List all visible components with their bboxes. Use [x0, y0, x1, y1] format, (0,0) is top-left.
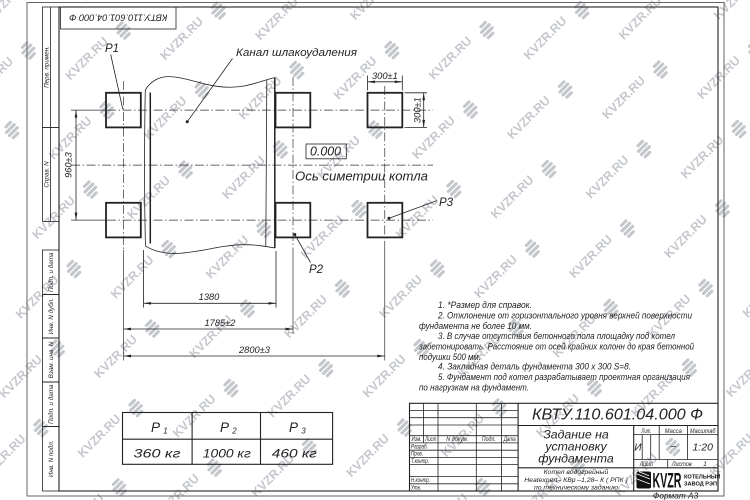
svg-text:Формат А3: Формат А3	[653, 490, 699, 500]
svg-text:Лит.: Лит.	[641, 428, 652, 435]
svg-text:2. Отклонение от горизонтальн: 2. Отклонение от горизонтального уровня …	[437, 309, 693, 320]
svg-text:1000 кг: 1000 кг	[203, 447, 251, 461]
svg-text:Листов: Листов	[671, 461, 692, 468]
svg-text:960±3: 960±3	[64, 151, 74, 178]
svg-text:5. Фундамент под котел разраб: 5. Фундамент под котел разрабатывает про…	[438, 371, 690, 382]
svg-text:Ось симетрии котла: Ось симетрии котла	[295, 170, 428, 184]
svg-text:1785±2: 1785±2	[205, 318, 237, 328]
svg-text:фундамента не более 10 мм.: фундамента не более 10 мм.	[419, 320, 532, 331]
svg-text:по техническому заданию: по техническому заданию	[534, 483, 618, 491]
svg-text:КОТЕЛЬНЫЙ: КОТЕЛЬНЫЙ	[684, 473, 720, 481]
svg-text:Утв.: Утв.	[410, 484, 421, 491]
svg-text:забетонировать. Расстояние от: забетонировать. Расстояние от осей крайн…	[418, 341, 694, 352]
svg-text:Масса: Масса	[665, 428, 682, 435]
svg-text:P2: P2	[309, 264, 324, 276]
svg-text:Н.контр.: Н.контр.	[411, 477, 430, 484]
svg-text:460 кг: 460 кг	[272, 447, 317, 461]
svg-text:Пров.: Пров.	[411, 451, 423, 458]
svg-text:Справ. N: Справ. N	[44, 161, 51, 188]
svg-text:1:20: 1:20	[692, 442, 713, 454]
svg-text:1: 1	[703, 461, 707, 468]
svg-text:Лист: Лист	[425, 436, 437, 443]
svg-text:300±1: 300±1	[412, 97, 422, 123]
svg-text:Инв. N дубл.: Инв. N дубл.	[47, 298, 55, 334]
svg-text:Перв. примен.: Перв. примен.	[44, 46, 51, 88]
svg-text:Подп. и дата: Подп. и дата	[47, 252, 55, 292]
svg-text:4. Закладная деталь фундамент: 4. Закладная деталь фундамента 300 x 300…	[438, 361, 631, 372]
svg-text:2800±3: 2800±3	[238, 345, 271, 355]
svg-text:Изм.: Изм.	[412, 436, 422, 443]
svg-text:Инв. N подл.: Инв. N подл.	[47, 440, 55, 477]
svg-text:360 кг: 360 кг	[134, 447, 181, 461]
svg-text:Масштаб: Масштаб	[690, 427, 716, 435]
svg-text:Взам. инв. N: Взам. инв. N	[48, 341, 55, 378]
svg-text:Heatexpert– КВр –1,28– К ( РПК: Heatexpert– КВр –1,28– К ( РПК )	[524, 477, 627, 484]
svg-text:P1: P1	[105, 43, 119, 55]
svg-text:300±1: 300±1	[372, 71, 398, 81]
svg-text:Подп. и дата: Подп. и дата	[47, 384, 55, 424]
svg-text:фундамента: фундамента	[538, 452, 614, 466]
svg-text:И: И	[634, 443, 642, 454]
svg-text:0.000: 0.000	[310, 145, 341, 159]
svg-text:Т.контр.: Т.контр.	[411, 458, 429, 465]
svg-text:КВТУ.110.601.04.000 Ф: КВТУ.110.601.04.000 Ф	[532, 407, 703, 424]
svg-text:Лист: Лист	[639, 461, 653, 468]
svg-text:1380: 1380	[199, 292, 221, 302]
svg-text:–: –	[670, 441, 677, 452]
svg-text:1. *Размер для справок.: 1. *Размер для справок.	[438, 299, 532, 310]
svg-text:Р3: Р3	[439, 197, 454, 209]
svg-text:3. В случае отсутствия бетонн: 3. В случае отсутствия бетонного пола пл…	[438, 330, 676, 341]
svg-text:Разраб.: Разраб.	[411, 443, 428, 451]
svg-text:КВТУ.110.601.04.000 Ф: КВТУ.110.601.04.000 Ф	[68, 13, 167, 23]
svg-text:KVZR: KVZR	[653, 470, 682, 493]
svg-text:по нагрузкам на фундамент.: по нагрузкам на фундамент.	[419, 381, 529, 392]
svg-text:Канал шлакоудаления: Канал шлакоудаления	[236, 47, 357, 59]
svg-text:Котел водогрейный: Котел водогрейный	[544, 468, 609, 476]
svg-text:Дата: Дата	[503, 436, 516, 443]
svg-text:ЗАВОД РЭП: ЗАВОД РЭП	[684, 482, 717, 488]
svg-text:N докум.: N докум.	[446, 435, 468, 443]
svg-text:Подп.: Подп.	[482, 435, 496, 443]
